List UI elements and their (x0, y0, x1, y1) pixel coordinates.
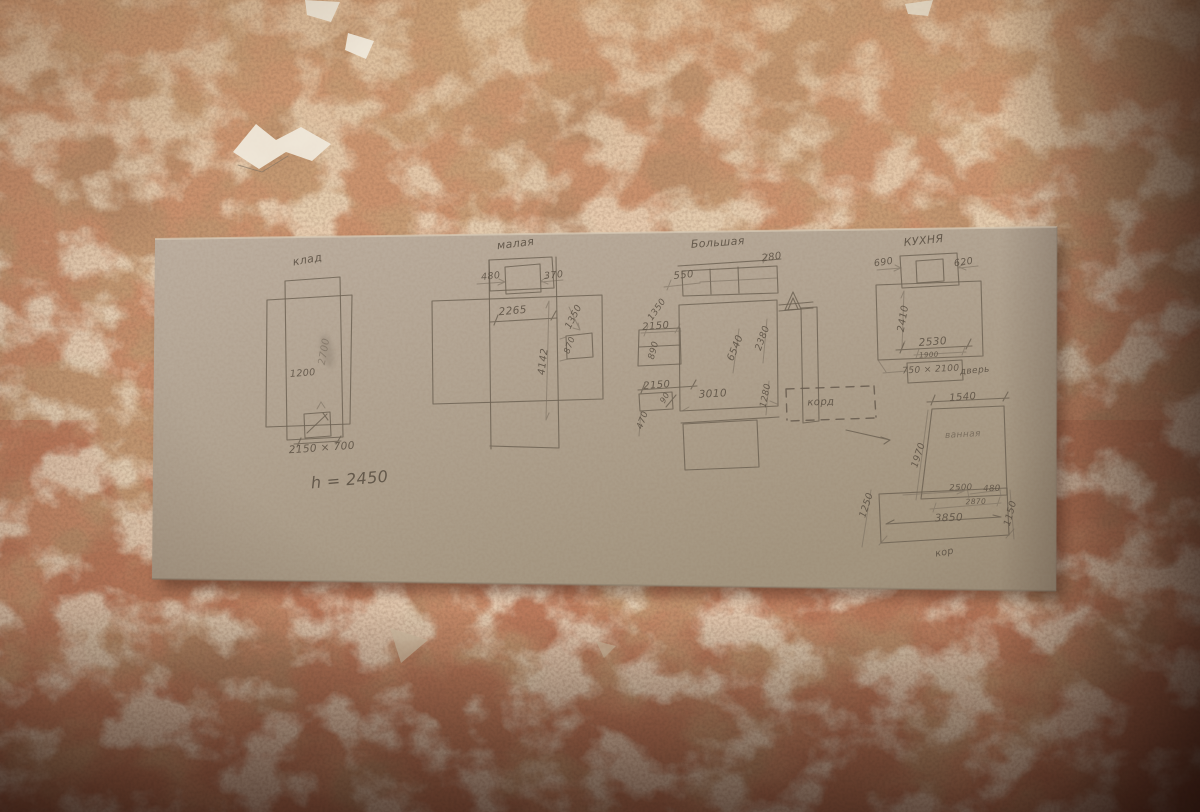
scene: клад270012002150 × 700h = 2450малая48037… (0, 0, 1200, 812)
photo-of-wall-with-cardboard: клад270012002150 × 700h = 2450малая48037… (0, 0, 1200, 812)
lighting-overlays (0, 0, 1200, 812)
